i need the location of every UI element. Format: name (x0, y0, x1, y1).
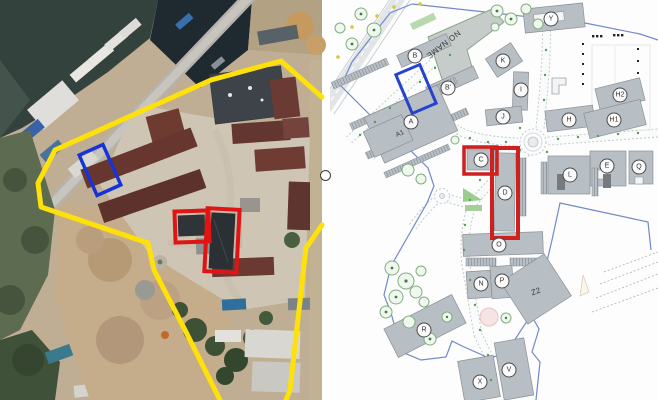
map-label-o: O (492, 238, 507, 253)
map-label-l: L (563, 168, 578, 183)
comparison-figure: Y K B B' I J A A1 H H2 H1 C D L E Q O N … (0, 0, 658, 400)
satellite-image (0, 0, 330, 400)
sat-shore (248, 0, 326, 55)
map-label-i: I (514, 83, 529, 98)
map-label-h2: H2 (613, 88, 628, 103)
map-label-b: B (408, 49, 423, 64)
site-plan-panel: Y K B B' I J A A1 H H2 H1 C D L E Q O N … (330, 0, 658, 400)
map-label-p: P (495, 274, 510, 289)
map-label-y: Y (544, 12, 559, 27)
map-label-r: R (417, 323, 432, 338)
map-label-d: D (498, 186, 513, 201)
map-label-k: K (496, 54, 511, 69)
satellite-photo-panel (0, 0, 330, 400)
map-label-e: E (600, 159, 615, 174)
site-plan-drawing (330, 0, 658, 400)
map-label-x: X (473, 375, 488, 390)
map-label-a: A (404, 115, 419, 130)
map-label-h1: H1 (607, 113, 622, 128)
selection-handle-marker[interactable] (320, 170, 331, 181)
map-label-v: V (502, 363, 517, 378)
map-label-b-prime: B' (441, 81, 456, 96)
map-label-n: N (474, 277, 489, 292)
map-label-q: Q (632, 160, 647, 175)
map-label-j: J (496, 110, 511, 125)
map-label-h: H (562, 113, 577, 128)
map-label-c: C (474, 153, 489, 168)
